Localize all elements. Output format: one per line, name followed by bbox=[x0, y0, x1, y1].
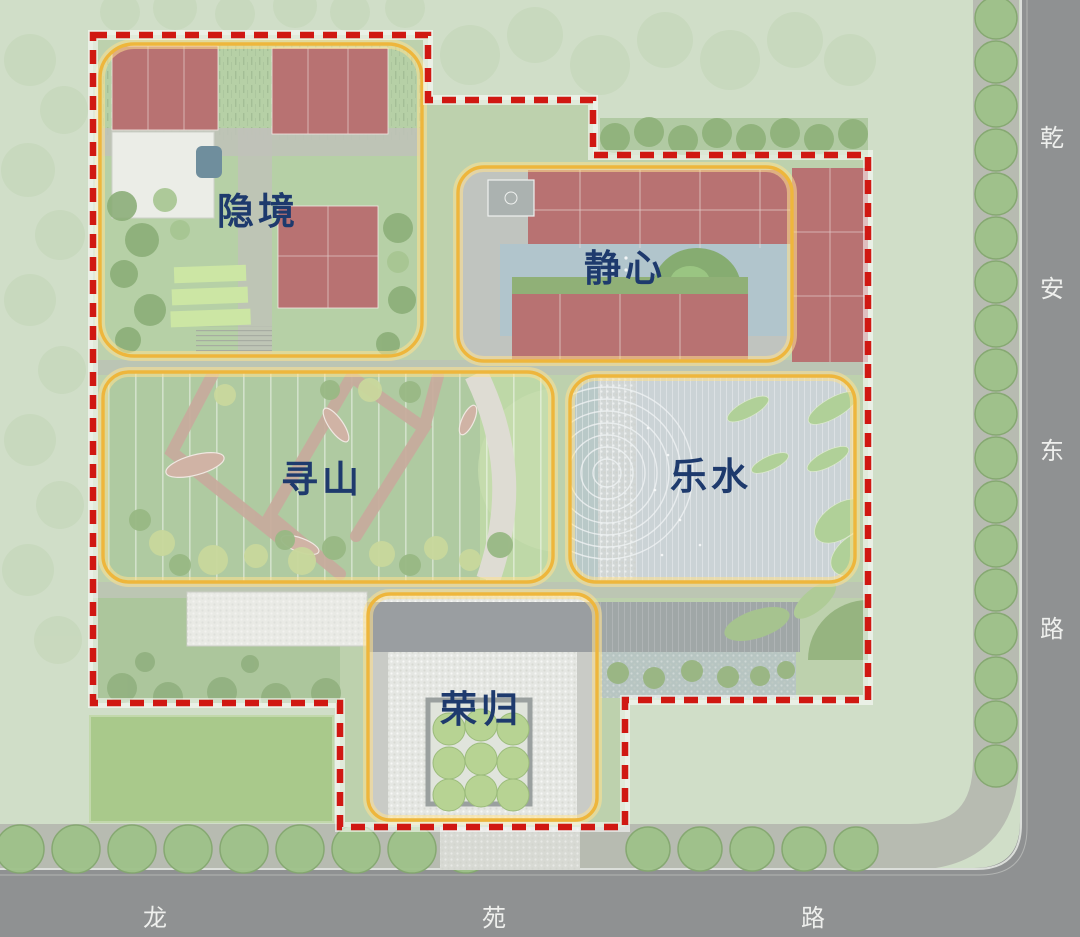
east-road-char-1: 乾 bbox=[1040, 124, 1064, 152]
south-road-char-3: 路 bbox=[801, 904, 825, 932]
south-entrance-texture bbox=[440, 826, 580, 870]
east-road-char-3: 东 bbox=[1040, 437, 1064, 465]
zone-label-jingxin: 静心 bbox=[584, 247, 666, 290]
zone-label-xunshan: 寻山 bbox=[281, 458, 363, 501]
master-plan-canvas: 隐境 静心 寻山 乐水 荣归 乾 安 东 路 龙 苑 路 bbox=[0, 0, 1080, 937]
east-road-char-4: 路 bbox=[1040, 615, 1064, 643]
southwest-lawn bbox=[90, 716, 333, 822]
zone-label-ronggui: 荣归 bbox=[440, 688, 522, 731]
south-road-char-2: 苑 bbox=[482, 904, 506, 932]
site-plan-svg: 隐境 静心 寻山 乐水 荣归 乾 安 东 路 龙 苑 路 bbox=[0, 0, 1080, 937]
zone-label-leshui: 乐水 bbox=[670, 455, 752, 498]
zone-label-yinjing: 隐境 bbox=[217, 190, 299, 233]
south-road-char-1: 龙 bbox=[143, 904, 167, 932]
east-road-char-2: 安 bbox=[1040, 275, 1064, 303]
